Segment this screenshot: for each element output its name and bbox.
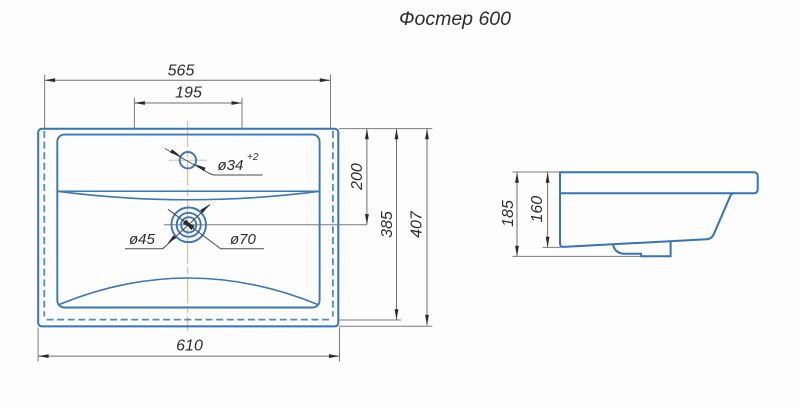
svg-text:407: 407 bbox=[409, 210, 426, 238]
svg-text:ø70: ø70 bbox=[230, 231, 257, 248]
svg-text:385: 385 bbox=[379, 211, 396, 238]
svg-text:Фостер 600: Фостер 600 bbox=[399, 8, 511, 30]
svg-text:610: 610 bbox=[176, 338, 203, 355]
svg-text:ø34: ø34 bbox=[218, 157, 244, 174]
svg-text:200: 200 bbox=[349, 163, 366, 191]
svg-text:195: 195 bbox=[175, 84, 202, 101]
svg-text:565: 565 bbox=[168, 63, 195, 80]
svg-text:160: 160 bbox=[529, 196, 546, 223]
svg-text:+2: +2 bbox=[247, 152, 259, 163]
svg-text:ø45: ø45 bbox=[129, 231, 156, 248]
svg-text:185: 185 bbox=[500, 200, 517, 227]
